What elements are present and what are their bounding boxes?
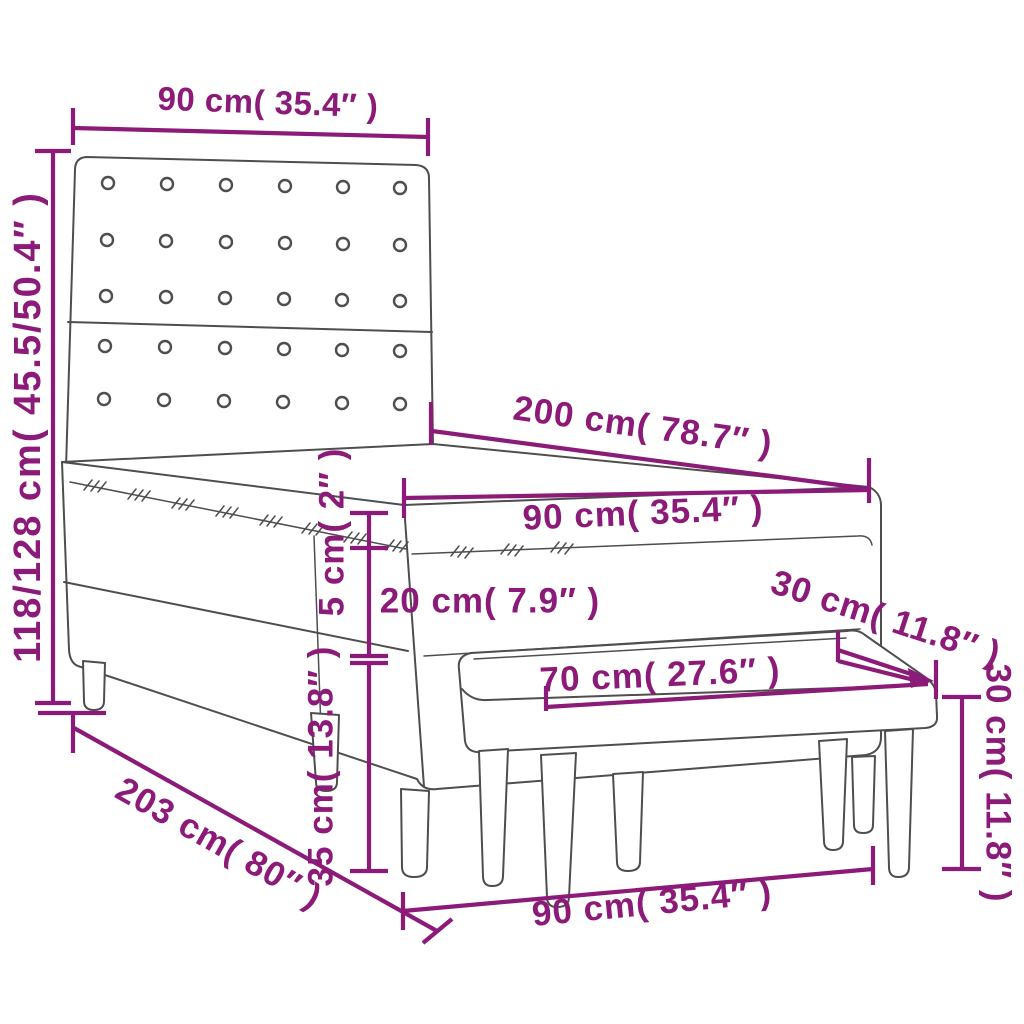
- headboard-panel: [66, 157, 433, 468]
- dim-headboard-width-label: 90 cm( 35.4″ ): [157, 80, 379, 125]
- dim-mattress-height-label: 20 cm( 7.9″ ): [380, 582, 600, 621]
- headboard-button: [159, 341, 171, 353]
- headboard-button: [220, 179, 232, 191]
- headboard-button: [98, 393, 110, 405]
- headboard-button: [278, 293, 290, 305]
- bench-leg: [885, 729, 913, 877]
- dim-bed-length-label: 200 cm( 78.7″ ): [511, 389, 775, 464]
- dim-topper-thickness-label: 5 cm( 2″ ): [313, 448, 352, 617]
- diagram-stage: 90 cm( 35.4″ ) 118/128 cm( 45.5/50.4″ ) …: [0, 0, 1024, 1024]
- headboard-button: [394, 345, 406, 357]
- headboard-button: [158, 394, 170, 406]
- dim-bed-total-length-label: 203 cm( 80″ ): [109, 769, 329, 916]
- headboard: [66, 157, 433, 468]
- headboard-button: [100, 290, 112, 302]
- headboard-button: [218, 395, 230, 407]
- headboard-button: [277, 396, 289, 408]
- dim-bench-height: 30 cm( 11.8″ ): [942, 664, 1018, 903]
- headboard-button: [99, 340, 111, 352]
- bench-leg: [479, 749, 508, 886]
- headboard-button: [336, 294, 348, 306]
- dim-frame-height-label: 35 cm( 13.8″ ): [302, 646, 341, 887]
- headboard-button: [394, 239, 406, 251]
- dim-headboard-width: 90 cm( 35.4″ ): [73, 80, 428, 156]
- bed-leg: [83, 661, 105, 710]
- headboard-button: [394, 398, 406, 410]
- headboard-button: [220, 236, 232, 248]
- dim-bench-height-label: 30 cm( 11.8″ ): [979, 664, 1018, 903]
- bench-leg: [819, 739, 847, 850]
- bench-leg: [541, 753, 576, 907]
- headboard-button: [279, 237, 291, 249]
- headboard-button: [160, 235, 172, 247]
- headboard-button: [219, 342, 231, 354]
- headboard-button: [219, 292, 231, 304]
- headboard-button: [337, 181, 349, 193]
- headboard-button: [101, 234, 113, 246]
- dim-headboard-height-label: 118/128 cm( 45.5/50.4″ ): [7, 191, 49, 663]
- headboard-button: [160, 291, 172, 303]
- bed-leg: [401, 789, 429, 877]
- headboard-button: [279, 180, 291, 192]
- dim-headboard-height: 118/128 cm( 45.5/50.4″ ): [7, 151, 71, 703]
- headboard-button: [161, 178, 173, 190]
- headboard-button: [102, 177, 114, 189]
- dimension-line: [73, 128, 428, 137]
- headboard-button: [394, 182, 406, 194]
- headboard-button: [336, 397, 348, 409]
- headboard-button: [278, 343, 290, 355]
- bed-leg: [613, 772, 643, 871]
- headboard-button: [394, 295, 406, 307]
- headboard-button: [336, 344, 348, 356]
- bed-leg: [852, 756, 875, 833]
- bed-dimension-diagram: 90 cm( 35.4″ ) 118/128 cm( 45.5/50.4″ ) …: [0, 0, 1024, 1024]
- headboard-button: [337, 238, 349, 250]
